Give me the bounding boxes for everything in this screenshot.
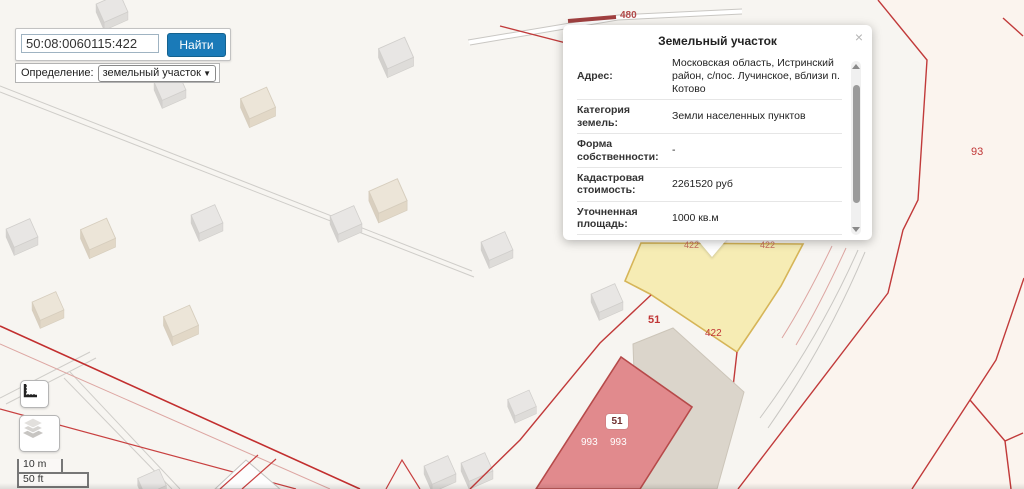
popup-scrollbar[interactable]: [851, 61, 861, 235]
building-51[interactable]: [536, 328, 744, 489]
definition-selected-value: земельный участок: [103, 67, 201, 79]
row-label: Кадастровая стоимость:: [577, 172, 672, 197]
row-label: Уточненная площадь:: [577, 206, 672, 231]
ruler-icon: [21, 381, 39, 399]
info-row-ownership: Форма собственности: -: [577, 133, 842, 167]
search-panel: Найти: [15, 28, 231, 61]
scale-control: 10 m 50 ft: [17, 459, 89, 488]
popup-pointer: [696, 238, 728, 257]
info-row-category: Категория земель: Земли населенных пункт…: [577, 99, 842, 133]
definition-label: Определение:: [21, 67, 94, 79]
scale-imperial: 50 ft: [17, 472, 89, 489]
row-value: Московская область, Истринский район, с/…: [672, 57, 842, 95]
scroll-down-icon[interactable]: [852, 227, 860, 232]
popup-body: Адрес: Московская область, Истринский ра…: [577, 53, 842, 236]
building-number-label: 51: [611, 416, 622, 427]
popup-title: Земельный участок: [563, 25, 872, 48]
search-input[interactable]: [21, 34, 159, 53]
row-value: Земли населенных пунктов: [672, 110, 842, 123]
building-number-badge: 51: [606, 414, 628, 429]
row-value: 2261520 руб: [672, 178, 842, 191]
selected-parcel-422[interactable]: [625, 243, 803, 352]
search-button[interactable]: Найти: [167, 33, 226, 57]
row-label: Форма собственности:: [577, 138, 672, 163]
scroll-up-icon[interactable]: [852, 64, 860, 69]
info-row-permitted-use: Разрешенное использование: для ведения л…: [577, 234, 842, 236]
measure-button[interactable]: [20, 380, 49, 408]
footpath: [0, 86, 474, 277]
definition-row: Определение: земельный участок ▼: [15, 63, 220, 83]
row-label: Адрес:: [577, 70, 672, 82]
info-row-address: Адрес: Московская область, Истринский ра…: [577, 53, 842, 99]
row-label: Категория земель:: [577, 104, 672, 129]
row-value: 1000 кв.м: [672, 212, 842, 225]
row-value: -: [672, 144, 842, 157]
layers-icon: [20, 416, 46, 440]
definition-select[interactable]: земельный участок ▼: [98, 65, 216, 82]
info-row-cadastral-value: Кадастровая стоимость: 2261520 руб: [577, 167, 842, 201]
info-row-area: Уточненная площадь: 1000 кв.м: [577, 201, 842, 235]
parcel-info-popup: × Земельный участок Адрес: Московская об…: [563, 25, 872, 240]
cadastral-map-app: 480 93 51 422 422 422 51 993 993 Найти О…: [0, 0, 1024, 489]
close-icon[interactable]: ×: [855, 30, 863, 44]
chevron-down-icon: ▼: [203, 69, 211, 78]
layers-button[interactable]: [19, 415, 60, 452]
scrollbar-thumb[interactable]: [853, 85, 860, 203]
